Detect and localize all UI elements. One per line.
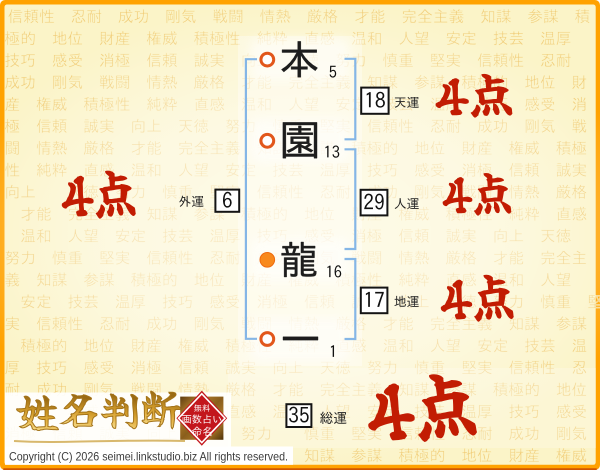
svg-text:Copyright (C) 2026 seimei.link: Copyright (C) 2026 seimei.linkstudio.biz…: [9, 450, 288, 464]
